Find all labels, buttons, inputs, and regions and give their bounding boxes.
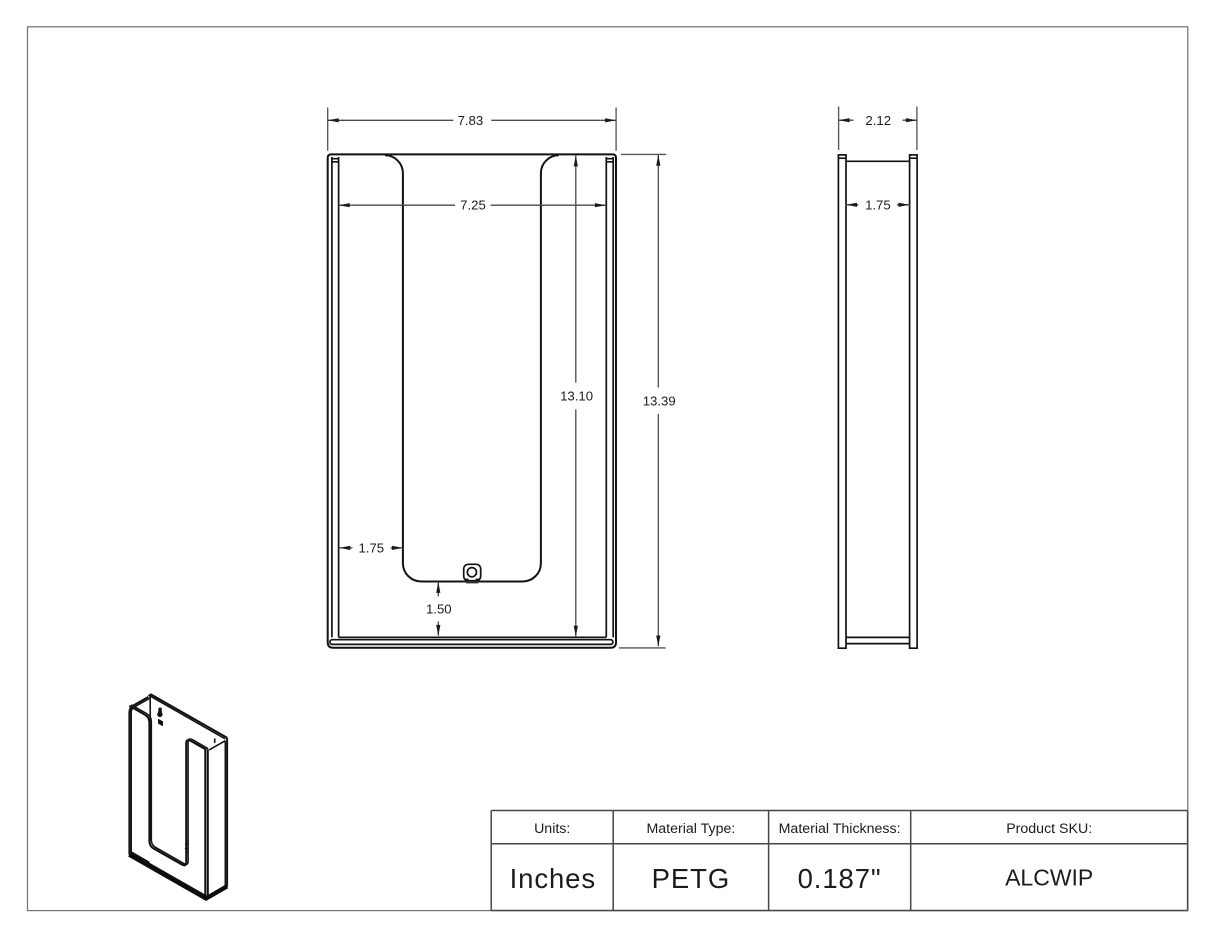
svg-text:Material Thickness:: Material Thickness: bbox=[779, 821, 901, 837]
svg-text:Material Type:: Material Type: bbox=[646, 821, 735, 837]
svg-text:7.25: 7.25 bbox=[460, 198, 486, 213]
svg-text:PETG: PETG bbox=[652, 863, 730, 894]
svg-text:0.187": 0.187" bbox=[798, 863, 882, 894]
svg-text:13.39: 13.39 bbox=[643, 394, 676, 409]
svg-text:Inches: Inches bbox=[510, 863, 596, 894]
svg-text:Units:: Units: bbox=[534, 821, 570, 837]
svg-text:ALCWIP: ALCWIP bbox=[1005, 864, 1093, 890]
svg-text:1.75: 1.75 bbox=[358, 541, 384, 556]
svg-text:1.50: 1.50 bbox=[426, 602, 452, 617]
svg-text:1.75: 1.75 bbox=[865, 197, 891, 212]
svg-text:2.12: 2.12 bbox=[865, 113, 891, 128]
svg-text:13.10: 13.10 bbox=[560, 389, 593, 404]
svg-text:Product SKU:: Product SKU: bbox=[1006, 821, 1092, 837]
svg-text:7.83: 7.83 bbox=[458, 113, 484, 128]
